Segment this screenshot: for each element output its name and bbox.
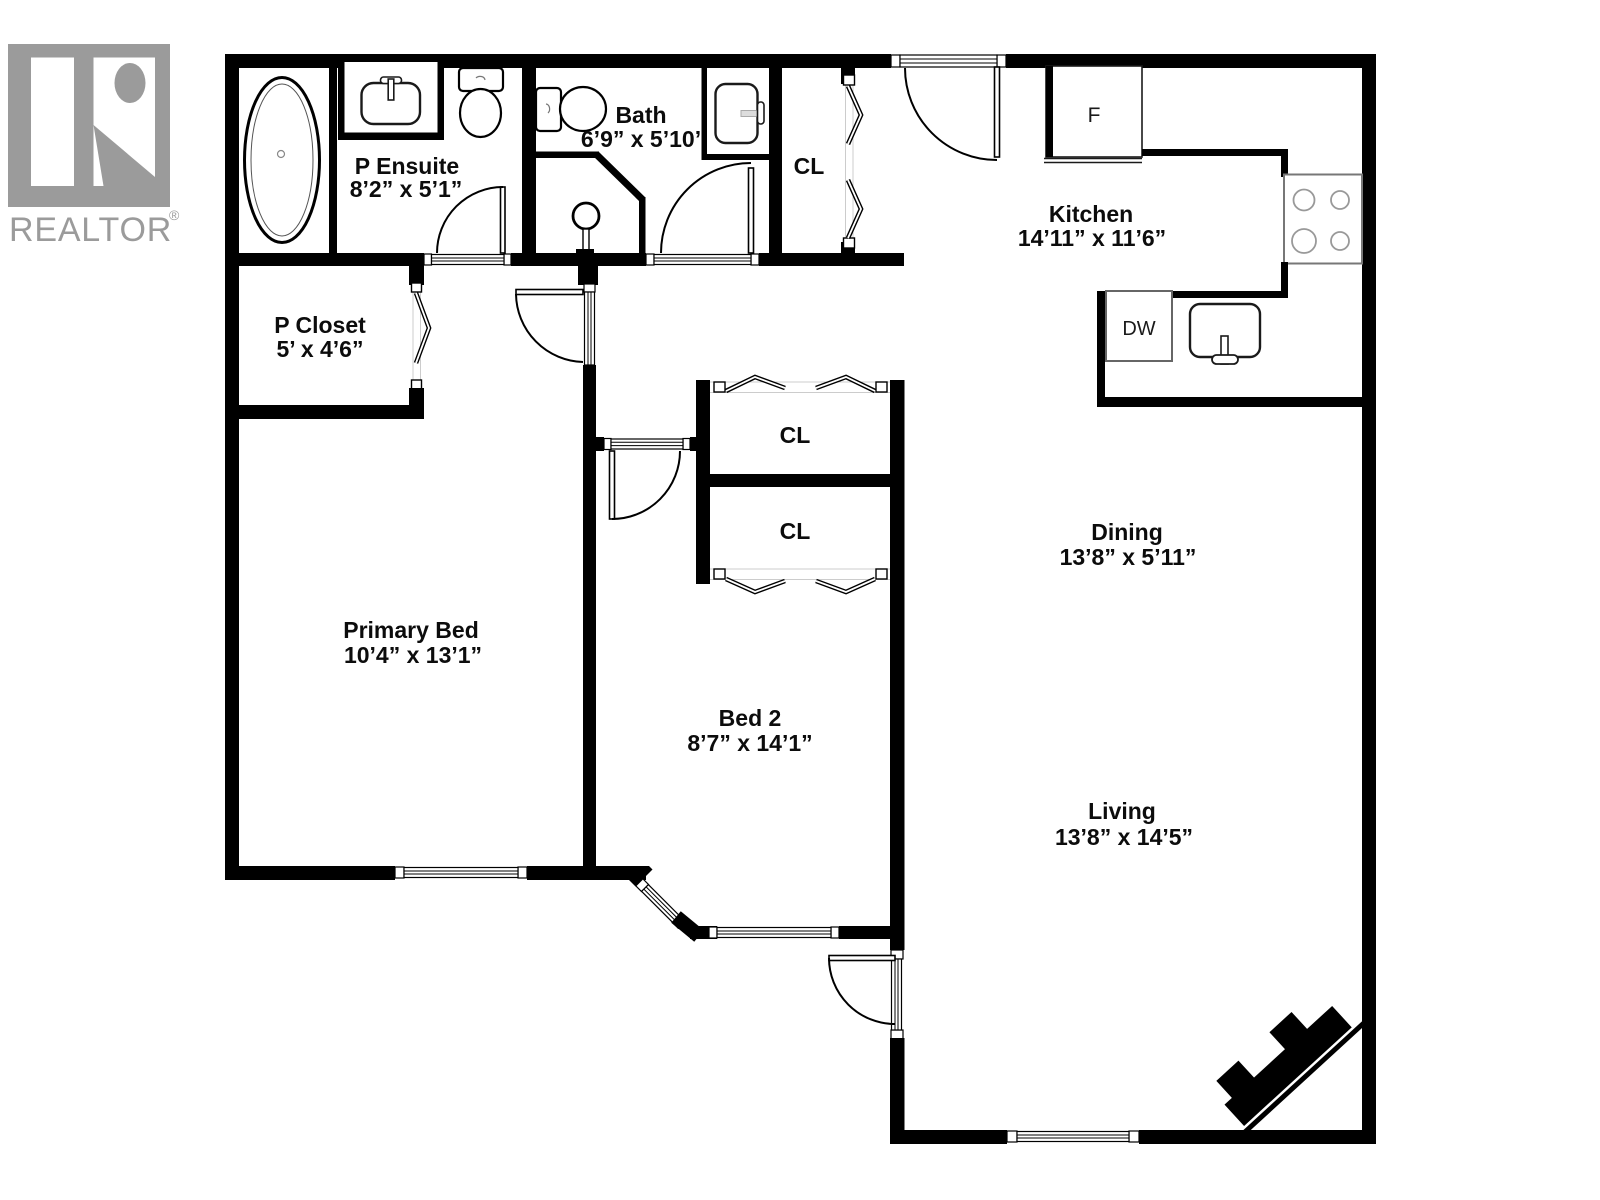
svg-text:REALTOR: REALTOR: [9, 211, 172, 249]
svg-text:®: ®: [169, 207, 180, 223]
svg-text:DW: DW: [1122, 318, 1155, 340]
svg-text:13’8” x 14’5”: 13’8” x 14’5”: [1055, 824, 1193, 850]
svg-text:8’2” x 5’1”: 8’2” x 5’1”: [350, 176, 463, 202]
svg-text:Primary Bed: Primary Bed: [343, 617, 479, 643]
svg-text:8’7” x 14’1”: 8’7” x 14’1”: [687, 730, 812, 756]
svg-text:Kitchen: Kitchen: [1049, 201, 1133, 227]
svg-text:Living: Living: [1088, 798, 1156, 824]
svg-text:Bed 2: Bed 2: [719, 705, 782, 731]
svg-text:14’11” x 11’6”: 14’11” x 11’6”: [1018, 225, 1166, 251]
svg-text:Dining: Dining: [1091, 519, 1163, 545]
svg-text:5’ x 4’6”: 5’ x 4’6”: [277, 336, 364, 362]
svg-text:CL: CL: [780, 422, 811, 448]
svg-text:6’9” x 5’10’: 6’9” x 5’10’: [581, 126, 701, 152]
svg-text:10’4” x 13’1”: 10’4” x 13’1”: [344, 642, 482, 668]
svg-text:F: F: [1088, 104, 1101, 127]
svg-text:Bath: Bath: [615, 102, 666, 128]
svg-text:13’8” x 5’11”: 13’8” x 5’11”: [1060, 544, 1197, 570]
svg-text:P Closet: P Closet: [274, 312, 366, 338]
svg-text:CL: CL: [780, 518, 811, 544]
svg-text:CL: CL: [794, 153, 825, 179]
